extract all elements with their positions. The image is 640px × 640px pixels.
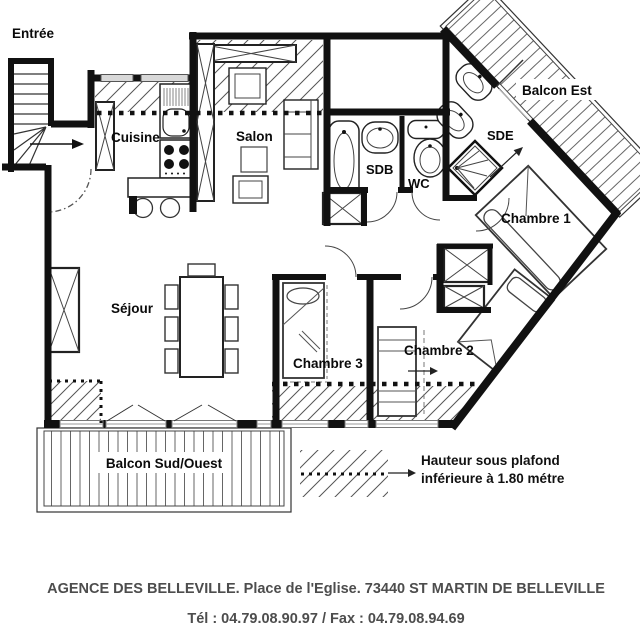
footer-agency-line: AGENCE DES BELLEVILLE. Place de l'Eglise… <box>47 581 605 597</box>
room-label-sejour: Séjour <box>111 301 154 316</box>
floor-plan-drawing: Hauteur sous plafond inférieure à 1.80 m… <box>0 0 640 640</box>
floor-plan-page: Hauteur sous plafond inférieure à 1.80 m… <box>0 0 640 640</box>
toilet <box>414 139 446 177</box>
room-label-cuisine: Cuisine <box>111 130 160 145</box>
salon-tall-wardrobe <box>197 44 214 201</box>
room-label-salon: Salon <box>236 129 273 144</box>
footer-phone-line: Tél : 04.79.08.90.97 / Fax : 04.79.08.94… <box>187 611 464 627</box>
room-label-chambre3: Chambre 3 <box>293 356 363 371</box>
bathtub <box>329 121 359 197</box>
sofa <box>284 100 318 169</box>
room-label-chambre1: Chambre 1 <box>501 211 571 226</box>
cuisine-windows <box>101 75 188 82</box>
hatch-bedrooms-strip <box>272 386 481 424</box>
dining-table <box>180 277 223 377</box>
kitchen-faucet-dot <box>182 129 186 133</box>
wardrobe-chambre1 <box>444 248 490 282</box>
salon-table <box>241 147 267 172</box>
legend-line2: inférieure à 1.80 métre <box>421 471 565 486</box>
room-label-chambre2: Chambre 2 <box>404 343 474 358</box>
room-label-wc: WC <box>408 176 430 191</box>
salon-shelf <box>206 45 296 62</box>
armchair <box>233 176 268 203</box>
hatch-sejour-corner <box>50 381 101 423</box>
room-label-sdb: SDB <box>366 162 393 177</box>
stool <box>161 199 180 218</box>
legend-line1: Hauteur sous plafond <box>421 453 560 468</box>
room-label-balcon-sud-ouest: Balcon Sud/Ouest <box>106 456 223 471</box>
room-label-entree: Entrée <box>12 26 55 41</box>
stove <box>160 140 192 178</box>
room-label-balcon-est: Balcon Est <box>522 83 592 98</box>
wc-hand-basin <box>408 121 444 139</box>
sdb-sink <box>362 122 398 153</box>
room-label-sde: SDE <box>487 128 514 143</box>
wardrobe-chambre2 <box>444 286 484 308</box>
sejour-wardrobe <box>49 268 79 352</box>
kitchen-counter <box>128 178 192 197</box>
